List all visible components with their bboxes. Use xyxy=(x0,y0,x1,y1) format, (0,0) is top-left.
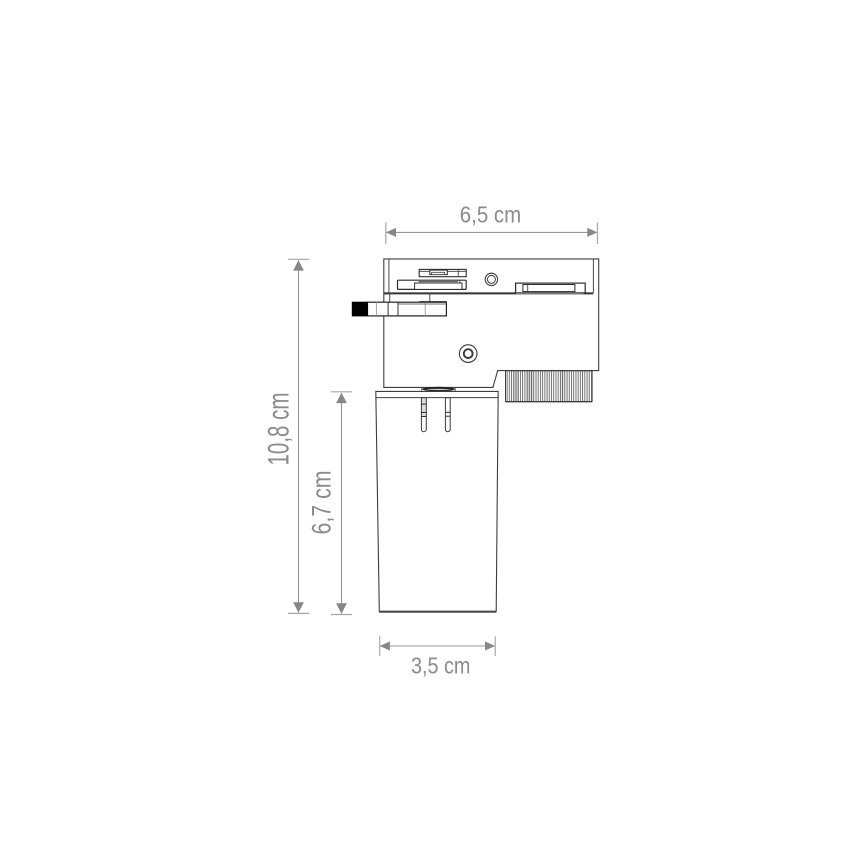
svg-text:3,5 cm: 3,5 cm xyxy=(411,652,471,678)
svg-text:6,5 cm: 6,5 cm xyxy=(460,201,522,227)
svg-text:6,7 cm: 6,7 cm xyxy=(307,471,337,535)
svg-text:10,8 cm: 10,8 cm xyxy=(263,393,296,466)
